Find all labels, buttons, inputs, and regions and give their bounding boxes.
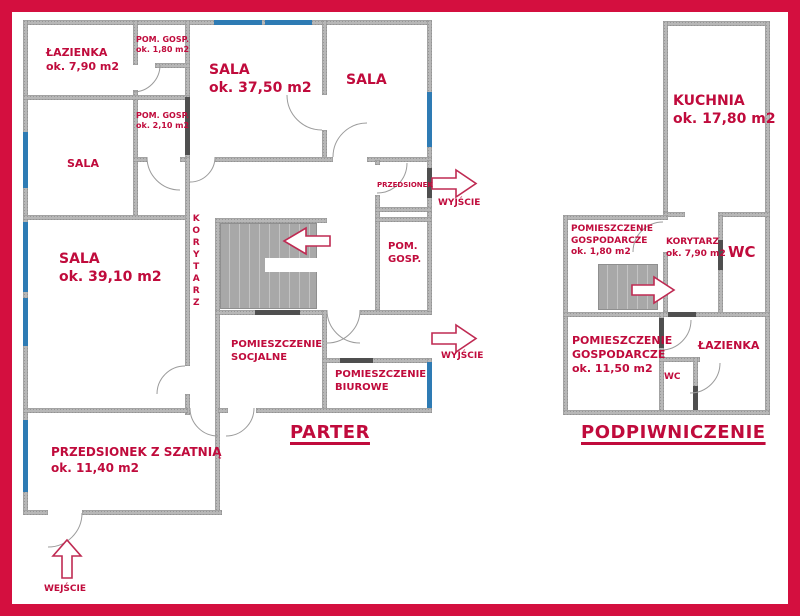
room-name: PRZEDSIONEK [377,181,433,190]
stairs-basement-arrow-icon [632,277,674,303]
room-name: SOCJALNE [231,352,322,365]
door-arc [190,157,215,182]
plan-title-text: PODPIWNICZENIE [581,422,766,445]
room-label-sala-mid: SALA [67,157,99,171]
room-label-przedsionek: PRZEDSIONEK [377,181,433,190]
room-name: WC [664,372,681,384]
room-label-sala-3750: SALA ok. 37,50 m2 [209,61,312,97]
stairs-parter-arrow-icon [284,228,330,254]
room-name: WC [728,243,756,262]
room-area: ok. 2,10 m2 [136,121,189,131]
room-label-pom-gosp-180-basement: POMIESZCZENIE GOSPODARCZE ok. 1,80 m2 [571,224,653,259]
room-area: ok. 7,90 m2 [46,60,119,74]
room-area: ok. 37,50 m2 [209,79,312,97]
room-label-pom-gosp-1150: POMIESZCZENIE GOSPODARCZE ok. 11,50 m2 [572,334,672,375]
plan-title-text: PARTER [290,422,370,445]
room-label-pom-gosp-180: POM. GOSP. ok. 1,80 m2 [136,35,189,56]
room-area: ok. 17,80 m2 [673,110,776,128]
room-label-pom-gosp-210: POM. GOSP. ok. 2,10 m2 [136,111,189,132]
room-name: ŁAZIENKA [46,46,119,60]
room-name: GOSP. [388,254,421,267]
room-label-socjalne: POMIESZCZENIE SOCJALNE [231,339,322,364]
podpiwniczenie-title: PODPIWNICZENIE [581,422,766,445]
room-area: ok. 7,90 m2 [666,249,726,261]
room-name: POMIESZCZENIE [231,339,322,352]
room-name: POMIESZCZENIE [571,224,653,236]
annotation-text: WEJŚCIE [44,584,86,596]
room-name: SALA [209,61,312,79]
wyjscie-top-arrow-icon [432,170,476,197]
room-label-lazienka: ŁAZIENKA ok. 7,90 m2 [46,46,119,74]
wyjscie-bottom-arrow-icon [432,325,476,352]
room-name: POM. GOSP. [136,111,189,121]
floorplan-canvas: ŁAZIENKA ok. 7,90 m2 POM. GOSP. ok. 1,80… [0,0,800,616]
room-name: POMIESZCZENIE [335,369,426,382]
door-arc [690,363,720,393]
room-name: SALA [67,157,99,171]
door-arc [226,408,254,436]
room-label-wc-bottom: WC [664,372,681,384]
room-name: KUCHNIA [673,92,776,110]
room-label-przedsionek-szatnia: PRZEDSIONEK Z SZATNIĄ ok. 11,40 m2 [51,444,221,476]
wyjscie-top-label: WYJŚCIE [438,198,480,210]
door-arc [133,65,160,92]
room-label-pom-gosp: POM. GOSP. [388,241,421,266]
door-arc [333,123,367,157]
room-area: ok. 11,50 m2 [572,362,672,376]
room-name: ŁAZIENKA [698,339,759,353]
door-arc [327,310,360,343]
room-name: POM. [388,241,421,254]
room-name: KORYTARZ [190,214,201,310]
room-name: GOSPODARCZE [571,236,653,248]
room-name: KORYTARZ [666,237,726,249]
room-name: GOSPODARCZE [572,348,672,362]
room-label-wc-top: WC [728,243,756,262]
room-name: POMIESZCZENIE [572,334,672,348]
room-name: SALA [346,71,387,89]
room-name: SALA [59,250,162,268]
room-area: ok. 39,10 m2 [59,268,162,286]
room-name: PRZEDSIONEK Z SZATNIĄ [51,444,221,460]
room-label-lazienka-basement: ŁAZIENKA [698,339,759,353]
room-name: POM. GOSP. [136,35,189,45]
room-area: ok. 1,80 m2 [571,247,653,259]
room-label-biurowe: POMIESZCZENIE BIUROWE [335,369,426,394]
annotation-text: WYJŚCIE [438,198,480,210]
room-area: ok. 11,40 m2 [51,460,221,476]
room-label-sala-3910: SALA ok. 39,10 m2 [59,250,162,286]
door-arc [287,95,322,130]
parter-title: PARTER [290,422,370,445]
wyjscie-bottom-label: WYJŚCIE [441,351,483,363]
room-name: BIUROWE [335,382,426,395]
room-label-korytarz-basement: KORYTARZ ok. 7,90 m2 [666,237,726,260]
door-arc [327,310,360,343]
room-label-sala-top-right: SALA [346,71,387,89]
door-arc [147,157,180,190]
room-label-kuchnia: KUCHNIA ok. 17,80 m2 [673,92,776,128]
annotation-text: WYJŚCIE [441,351,483,363]
wejscie-label: WEJŚCIE [44,584,86,596]
door-arc [190,408,218,436]
door-arc [157,366,185,394]
room-area: ok. 1,80 m2 [136,45,189,55]
room-label-korytarz: KORYTARZ [190,214,201,310]
